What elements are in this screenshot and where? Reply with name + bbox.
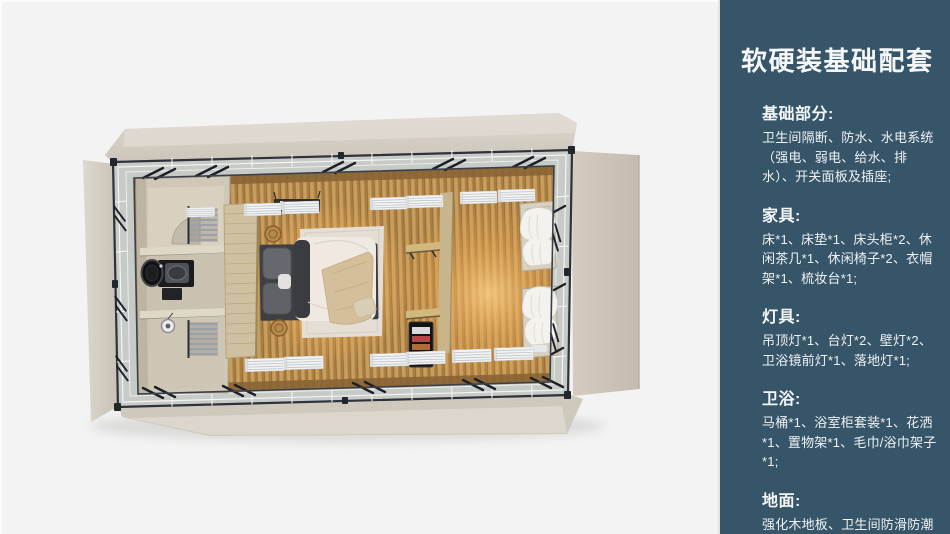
spec-heading-flooring: 地面: bbox=[762, 487, 940, 511]
spec-body-flooring: 强化木地板、卫生间防滑防潮石塑板; bbox=[762, 515, 938, 534]
spec-section-flooring: 地面: 强化木地板、卫生间防滑防潮石塑板; bbox=[762, 487, 940, 534]
floorplan-render bbox=[2, 2, 720, 534]
spec-sections: 基础部分: 卫生间隔断、防水、水电系统（强电、弱电、给水、排水）、开关面板及插座… bbox=[762, 100, 940, 534]
panel-title: 软硬装基础配套 bbox=[741, 46, 938, 76]
bathroom bbox=[136, 176, 230, 393]
spec-body-basics: 卫生间隔断、防水、水电系统（强电、弱电、给水、排水）、开关面板及插座; bbox=[762, 128, 938, 187]
spec-heading-bathroom: 卫浴: bbox=[762, 385, 940, 409]
towel-radiator-bottom bbox=[188, 320, 218, 358]
spec-panel: 软硬装基础配套 基础部分: 卫生间隔断、防水、水电系统（强电、弱电、给水、排水）… bbox=[718, 0, 950, 534]
spec-section-bathroom: 卫浴: 马桶*1、浴室柜套装*1、花洒*1、置物架*1、毛巾/浴巾架子*1; bbox=[762, 385, 940, 472]
nightstand-basket-top bbox=[265, 226, 281, 242]
spec-heading-lighting: 灯具: bbox=[762, 303, 940, 327]
spec-section-lighting: 灯具: 吊顶灯*1、台灯*2、壁灯*2、卫浴镜前灯*1、落地灯*1; bbox=[762, 303, 940, 370]
duvet-fold-dark bbox=[294, 240, 310, 318]
spec-section-furniture: 家具: 床*1、床垫*1、床头柜*2、休闲茶几*1、休闲椅子*2、衣帽架*1、梳… bbox=[762, 202, 940, 289]
spec-section-basics: 基础部分: 卫生间隔断、防水、水电系统（强电、弱电、给水、排水）、开关面板及插座… bbox=[762, 100, 940, 187]
slide: 软硬装基础配套 基础部分: 卫生间隔断、防水、水电系统（强电、弱电、给水、排水）… bbox=[0, 0, 950, 534]
nightstand-basket-bottom bbox=[271, 320, 287, 336]
spec-heading-basics: 基础部分: bbox=[762, 100, 940, 124]
spec-body-bathroom: 马桶*1、浴室柜套装*1、花洒*1、置物架*1、毛巾/浴巾架子*1; bbox=[762, 413, 938, 472]
floorplan-canvas bbox=[0, 0, 718, 534]
spec-heading-furniture: 家具: bbox=[762, 202, 940, 226]
partition-wall bbox=[438, 192, 453, 354]
headboard-panel bbox=[224, 203, 258, 358]
spec-body-furniture: 床*1、床垫*1、床头柜*2、休闲茶几*1、休闲椅子*2、衣帽架*1、梳妆台*1… bbox=[762, 230, 938, 289]
spec-body-lighting: 吊顶灯*1、台灯*2、壁灯*2、卫浴镜前灯*1、落地灯*1; bbox=[762, 331, 938, 370]
right-wall bbox=[572, 151, 639, 396]
